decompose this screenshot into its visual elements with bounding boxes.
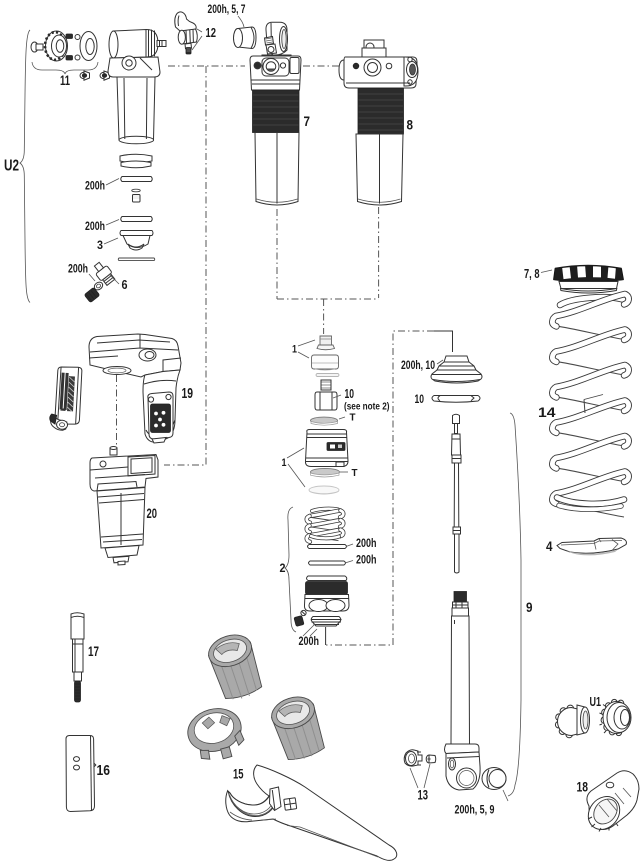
svg-text:17: 17: [88, 644, 99, 659]
svg-text:200h: 200h: [356, 536, 377, 550]
svg-text:200h: 200h: [68, 262, 88, 276]
svg-text:13: 13: [418, 787, 429, 802]
svg-text:8: 8: [407, 118, 414, 133]
svg-text:1: 1: [282, 457, 287, 469]
svg-text:200h: 200h: [299, 634, 320, 648]
svg-text:10: 10: [415, 392, 425, 406]
svg-text:7: 7: [304, 114, 311, 129]
svg-text:19: 19: [182, 385, 194, 402]
svg-text:4: 4: [546, 538, 553, 554]
svg-text:200h: 200h: [356, 553, 377, 567]
svg-text:200h, 5, 7: 200h, 5, 7: [208, 2, 246, 16]
svg-text:U1: U1: [590, 694, 602, 709]
svg-text:3: 3: [97, 238, 103, 252]
svg-text:7, 8: 7, 8: [524, 267, 540, 281]
svg-text:20: 20: [147, 505, 158, 521]
svg-text:18: 18: [577, 780, 589, 795]
svg-text:14: 14: [538, 404, 556, 420]
svg-text:15: 15: [233, 766, 244, 782]
svg-text:10: 10: [345, 387, 355, 401]
svg-text:200h, 10: 200h, 10: [401, 358, 435, 372]
svg-text:11: 11: [60, 73, 70, 88]
svg-text:16: 16: [97, 762, 111, 779]
svg-text:200h, 5, 9: 200h, 5, 9: [455, 802, 495, 816]
svg-text:U2: U2: [4, 158, 19, 175]
svg-text:12: 12: [206, 26, 217, 40]
svg-text:T: T: [352, 467, 359, 479]
svg-text:1: 1: [292, 344, 297, 356]
svg-text:200h: 200h: [85, 219, 105, 233]
svg-text:T: T: [350, 412, 357, 424]
svg-text:6: 6: [122, 278, 128, 292]
svg-text:200h: 200h: [85, 178, 105, 192]
svg-text:9: 9: [526, 600, 533, 615]
